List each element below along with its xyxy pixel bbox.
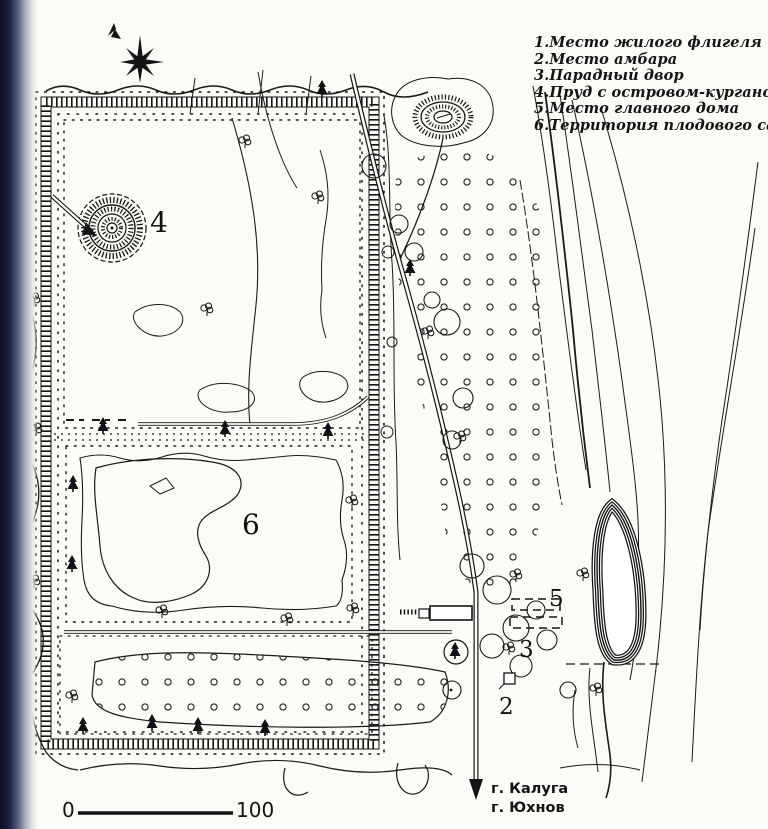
road-arrow-icon: [469, 779, 483, 800]
label-barn-2: 2: [499, 694, 514, 720]
orchard-garden-area6: [54, 434, 368, 622]
upper-park-area: [64, 118, 368, 428]
long-pond-steep-banks: [597, 505, 641, 660]
compass-rose-icon: [120, 35, 164, 83]
destination-yukhnov-label: г. Юхнов: [491, 800, 565, 816]
north-marker-icon: [108, 23, 121, 39]
legend-item-4: 4.Пруд с островом-курганом: [534, 85, 766, 102]
label-front-yard-3: 3: [519, 637, 534, 663]
label-orchard-6: 6: [242, 508, 260, 541]
stream-valley: [520, 86, 758, 798]
destination-kaluga-label: г. Калуга: [491, 781, 568, 797]
legend-item-6: 6.Территория плодового сада: [534, 118, 766, 135]
scale-end-label: 100: [236, 798, 274, 822]
legend-item-5: 5.Место главного дома: [534, 101, 766, 118]
legend: 1.Место жилого флигеля 2.Место амбара 3.…: [534, 35, 766, 135]
scale-start-label: 0: [62, 798, 75, 822]
label-main-house-5: 5: [549, 586, 564, 612]
legend-item-3: 3.Парадный двор: [534, 68, 766, 85]
label-pond-4: 4: [150, 206, 168, 239]
bottom-orchard-strip: [60, 636, 448, 734]
barn-site-square: [504, 673, 515, 684]
estate-plan-page: 4 6 5 3 2 0 100 г. Калуга г. Юхнов 1.Мес…: [0, 0, 768, 829]
flank-building: [430, 606, 472, 620]
legend-item-1: 1.Место жилого флигеля: [534, 35, 766, 52]
scale-bar: 0 100: [62, 798, 274, 822]
wing-building: [419, 609, 429, 618]
legend-item-2: 2.Место амбара: [534, 52, 766, 69]
